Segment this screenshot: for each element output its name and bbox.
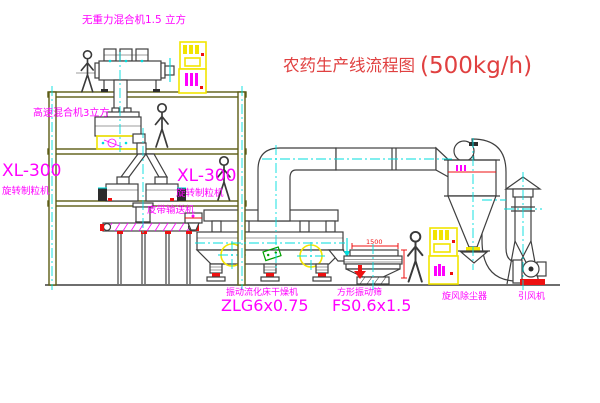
label-belt-conveyor: 皮带输送机	[147, 204, 195, 216]
label-dryer-model: ZLG6x0.75	[221, 296, 309, 315]
production-line-diagram: 1500	[0, 0, 600, 403]
label-fan: 引风机	[518, 290, 545, 302]
label-sieve-model: FS0.6x1.5	[332, 296, 411, 315]
control-cabinet-top	[179, 42, 206, 93]
label-granulator-center-model: XL-300	[177, 166, 236, 186]
label-granulator-center-name: 旋转制粒机	[176, 187, 224, 199]
label-cyclone: 旋风除尘器	[442, 290, 487, 302]
label-top-mixer: 无重力混合机1.5 立方	[82, 13, 186, 26]
diagram-title-capacity: (500kg/h)	[420, 53, 532, 79]
label-granulator-left-model: XL-300	[2, 161, 61, 181]
building-column-right	[238, 92, 245, 285]
diagram-title: 农药生产线流程图	[283, 56, 415, 75]
label-mid-mixer: 高速混合机3立方	[33, 106, 109, 119]
label-granulator-left-name: 旋转制粒机	[2, 185, 50, 197]
sieve-dimension-text: 1500	[366, 238, 383, 246]
induced-draft-fan	[513, 260, 546, 285]
flow-diagram-canvas: 1500	[0, 0, 600, 403]
control-cabinet-bottom	[429, 228, 458, 284]
